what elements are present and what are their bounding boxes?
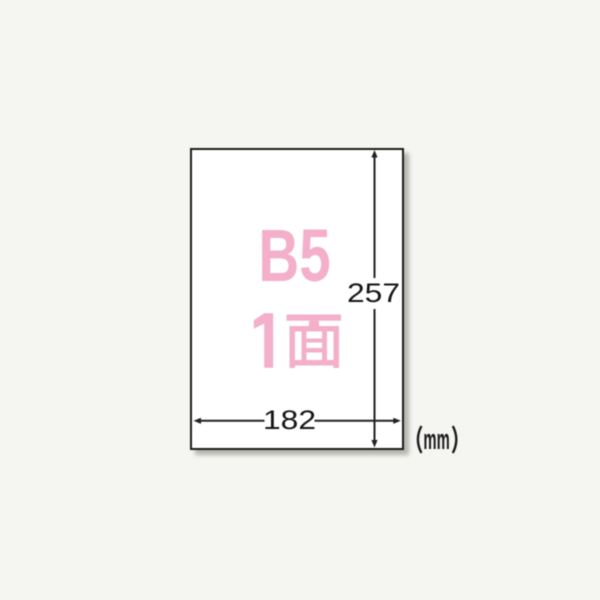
- svg-text:182: 182: [263, 407, 316, 436]
- svg-text:B5: B5: [258, 214, 330, 297]
- svg-text:257: 257: [347, 279, 400, 308]
- svg-text:mm: mm: [423, 423, 449, 456]
